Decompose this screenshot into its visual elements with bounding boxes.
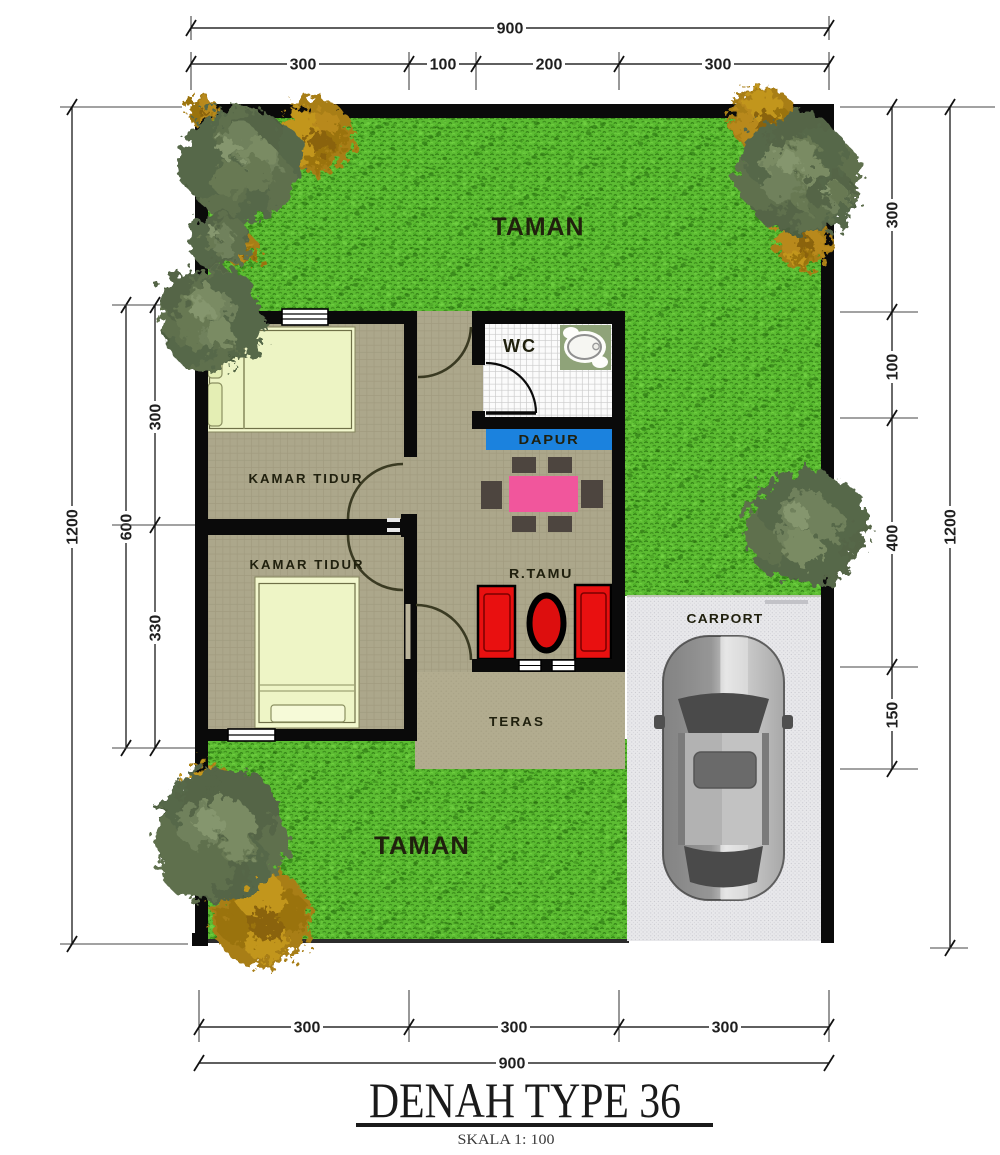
svg-text:SKALA 1: 100: SKALA 1: 100 — [458, 1132, 555, 1148]
svg-text:TERAS: TERAS — [489, 714, 545, 729]
svg-text:TAMAN: TAMAN — [492, 213, 585, 241]
svg-text:300: 300 — [885, 202, 902, 229]
svg-text:300: 300 — [148, 404, 165, 431]
svg-text:330: 330 — [148, 615, 165, 642]
svg-text:100: 100 — [885, 354, 902, 381]
svg-text:KAMAR TIDUR: KAMAR TIDUR — [250, 557, 365, 572]
svg-text:150: 150 — [885, 702, 902, 729]
svg-text:DAPUR: DAPUR — [519, 432, 580, 447]
svg-text:400: 400 — [885, 525, 902, 552]
svg-text:300: 300 — [294, 1020, 321, 1037]
svg-text:900: 900 — [497, 21, 524, 38]
svg-text:300: 300 — [501, 1020, 528, 1037]
svg-text:1200: 1200 — [65, 509, 82, 545]
svg-text:300: 300 — [290, 57, 317, 74]
svg-text:900: 900 — [499, 1056, 526, 1073]
svg-text:300: 300 — [712, 1020, 739, 1037]
svg-text:TAMAN: TAMAN — [374, 832, 470, 860]
svg-text:DENAH TYPE 36: DENAH TYPE 36 — [369, 1072, 681, 1128]
svg-text:WC: WC — [503, 336, 537, 356]
svg-text:300: 300 — [705, 57, 732, 74]
svg-text:600: 600 — [119, 514, 136, 541]
svg-text:CARPORT: CARPORT — [687, 611, 764, 626]
svg-text:1200: 1200 — [943, 509, 960, 545]
svg-text:KAMAR TIDUR: KAMAR TIDUR — [249, 471, 364, 486]
svg-text:R.TAMU: R.TAMU — [509, 566, 573, 581]
svg-text:100: 100 — [430, 57, 457, 74]
svg-text:200: 200 — [536, 57, 563, 74]
